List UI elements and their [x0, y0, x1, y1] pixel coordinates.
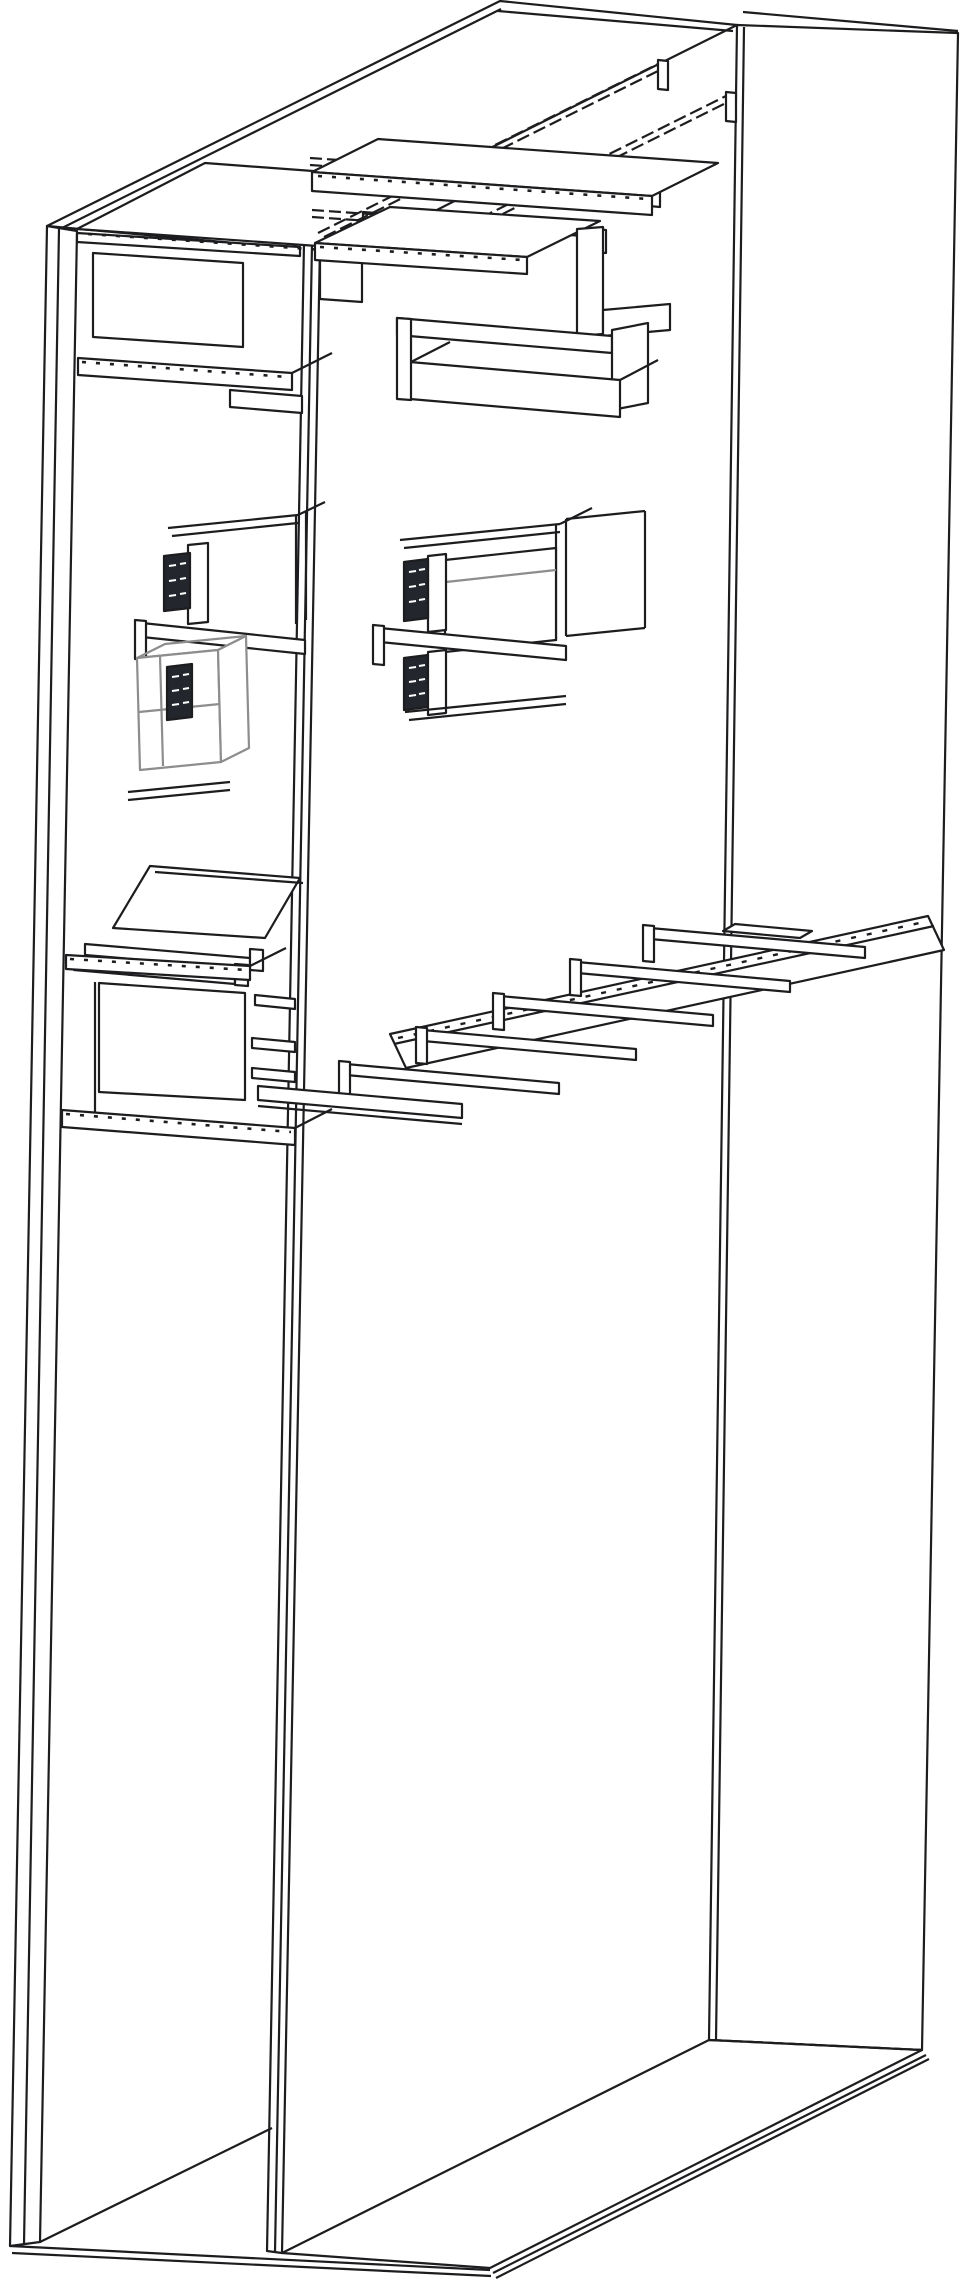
- left-bay-bottom-tab: [230, 390, 302, 413]
- right-wall-panel: [709, 25, 958, 2050]
- c-channel-left-cap: [397, 318, 411, 400]
- connector-band-1: [255, 995, 295, 1009]
- bracket2-frame-top-b: [404, 532, 560, 548]
- cad-figure: [0, 0, 969, 2280]
- tray-rung: [346, 1064, 559, 1094]
- left-side-panel: [10, 226, 77, 2246]
- bottom-panel-face: [282, 2040, 922, 2268]
- din-hatch-mark: [183, 702, 189, 703]
- tray-rung-cap: [493, 993, 504, 1030]
- din-hatch-mark: [409, 571, 416, 572]
- din-hatch-mark: [172, 676, 179, 677]
- din-hatch-mark: [409, 695, 416, 696]
- din-hatch-mark: [419, 693, 425, 694]
- din-hatch-mark: [409, 586, 416, 587]
- din-hatch-mark: [183, 674, 189, 675]
- shelf-post-right: [577, 227, 603, 336]
- din-hatch-mark: [169, 565, 176, 566]
- tray-rung-cap: [570, 959, 581, 996]
- crossbar-right-cap: [373, 625, 384, 665]
- din-hatch-mark: [180, 578, 186, 579]
- din-hatch-mark: [169, 580, 176, 581]
- bracket2-back-bottom: [566, 628, 645, 636]
- din-block: [164, 553, 190, 611]
- din-hatch-mark: [172, 704, 179, 705]
- gray-box-side: [218, 636, 249, 762]
- bracket2-plate-lower: [428, 650, 446, 715]
- din-hatch-mark: [419, 679, 425, 680]
- technical-drawing-canvas: [0, 0, 969, 2280]
- din-hatch-mark: [180, 593, 186, 594]
- left-bay-opening: [93, 253, 243, 347]
- tray-rung-cap: [416, 1027, 427, 1064]
- din-block: [167, 664, 192, 720]
- c-channel-back-edge-top: [411, 342, 450, 362]
- din-hatch-mark: [172, 690, 179, 691]
- din-hatch-mark: [419, 584, 425, 585]
- bracket2-plate: [428, 554, 446, 632]
- din-hatch-mark: [183, 688, 189, 689]
- c-channel-bottom-arm: [410, 362, 620, 417]
- din-hatch-mark: [409, 681, 416, 682]
- din-hatch-mark: [169, 595, 176, 596]
- floor-left-back-edge: [40, 2128, 272, 2242]
- top-rail-long-2-hook: [726, 92, 736, 122]
- din-hatch-mark: [180, 563, 186, 564]
- din-hatch-mark: [419, 665, 425, 666]
- cabinet-box-opening: [99, 983, 245, 1100]
- din-hatch-mark: [419, 569, 425, 570]
- din-hatch-mark: [409, 601, 416, 602]
- top-rail-long-1-hook: [658, 60, 668, 90]
- tray-rung-cap: [643, 925, 654, 962]
- din-block: [404, 655, 428, 710]
- din-hatch-mark: [419, 599, 425, 600]
- din-hatch-mark: [409, 667, 416, 668]
- bracket2-frame-top: [400, 524, 560, 540]
